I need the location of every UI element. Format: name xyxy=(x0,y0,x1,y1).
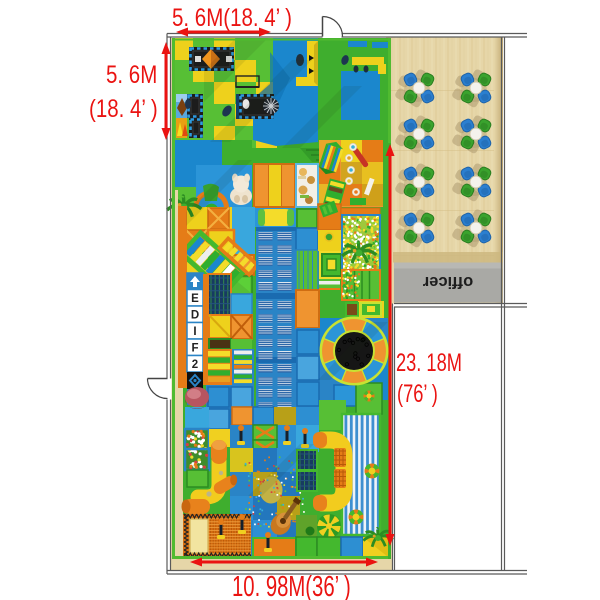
svg-text:23. 18M: 23. 18M xyxy=(396,348,462,377)
svg-text:5. 6M(18. 4’ ): 5. 6M(18. 4’ ) xyxy=(172,3,292,31)
svg-text:5. 6M: 5. 6M xyxy=(106,60,157,88)
svg-text:(76’ ): (76’ ) xyxy=(397,379,438,408)
svg-text:2: 2 xyxy=(192,359,198,371)
svg-text:F: F xyxy=(191,343,198,355)
svg-text:D: D xyxy=(191,310,199,322)
svg-text:10. 98M(36’ ): 10. 98M(36’ ) xyxy=(232,571,351,600)
svg-text:officer: officer xyxy=(422,273,473,291)
svg-text:I: I xyxy=(193,326,196,338)
svg-text:E: E xyxy=(191,293,199,305)
svg-text:(18. 4’ ): (18. 4’ ) xyxy=(89,94,158,122)
